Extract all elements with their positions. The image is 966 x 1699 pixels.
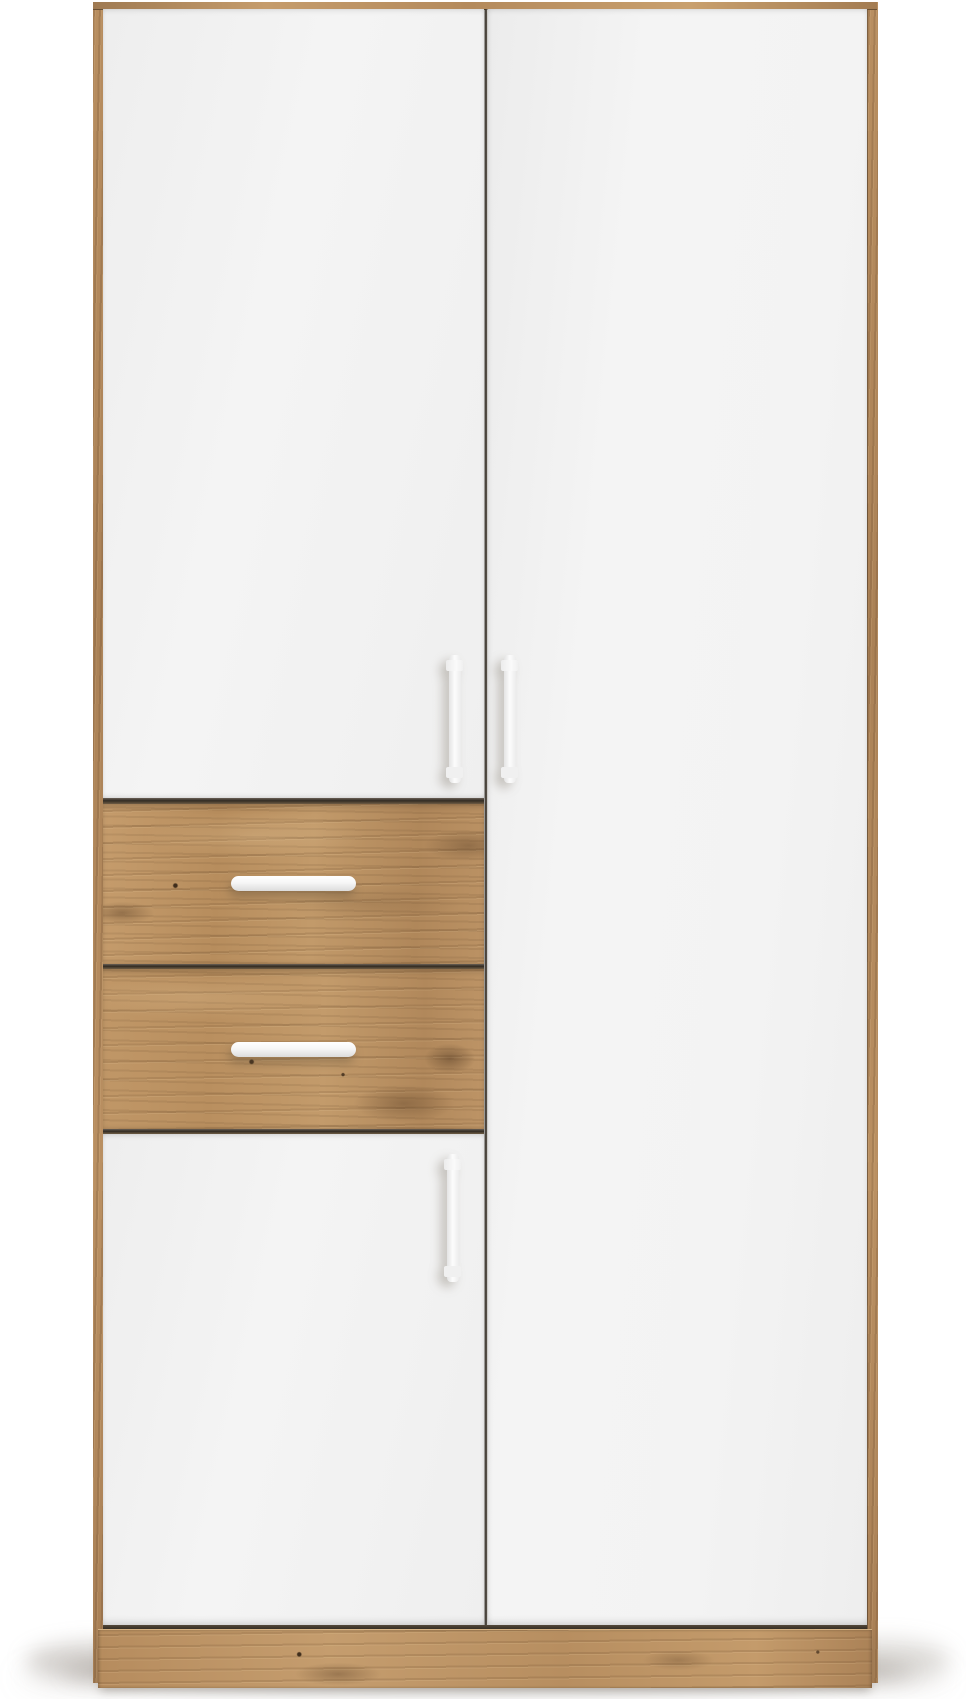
plinth: [98, 1629, 872, 1688]
wardrobe-fronts: [103, 9, 867, 1625]
wardrobe-side-frame-right: [867, 2, 878, 1683]
drawer-1: [103, 804, 484, 964]
lower-left-door-handle: [444, 1154, 462, 1282]
wardrobe-body: [93, 2, 877, 1687]
upper-left-door-handle: [446, 655, 464, 783]
drawer-2-handle: [231, 1042, 356, 1057]
left-column: [103, 9, 484, 1625]
right-door: [488, 9, 867, 1625]
product-photo[interactable]: [0, 0, 966, 1699]
lower-left-door: [103, 1134, 484, 1625]
upper-left-door: [103, 9, 484, 798]
drawer-2: [103, 969, 484, 1129]
drawer-1-handle: [231, 876, 356, 891]
right-door-handle: [501, 655, 519, 783]
